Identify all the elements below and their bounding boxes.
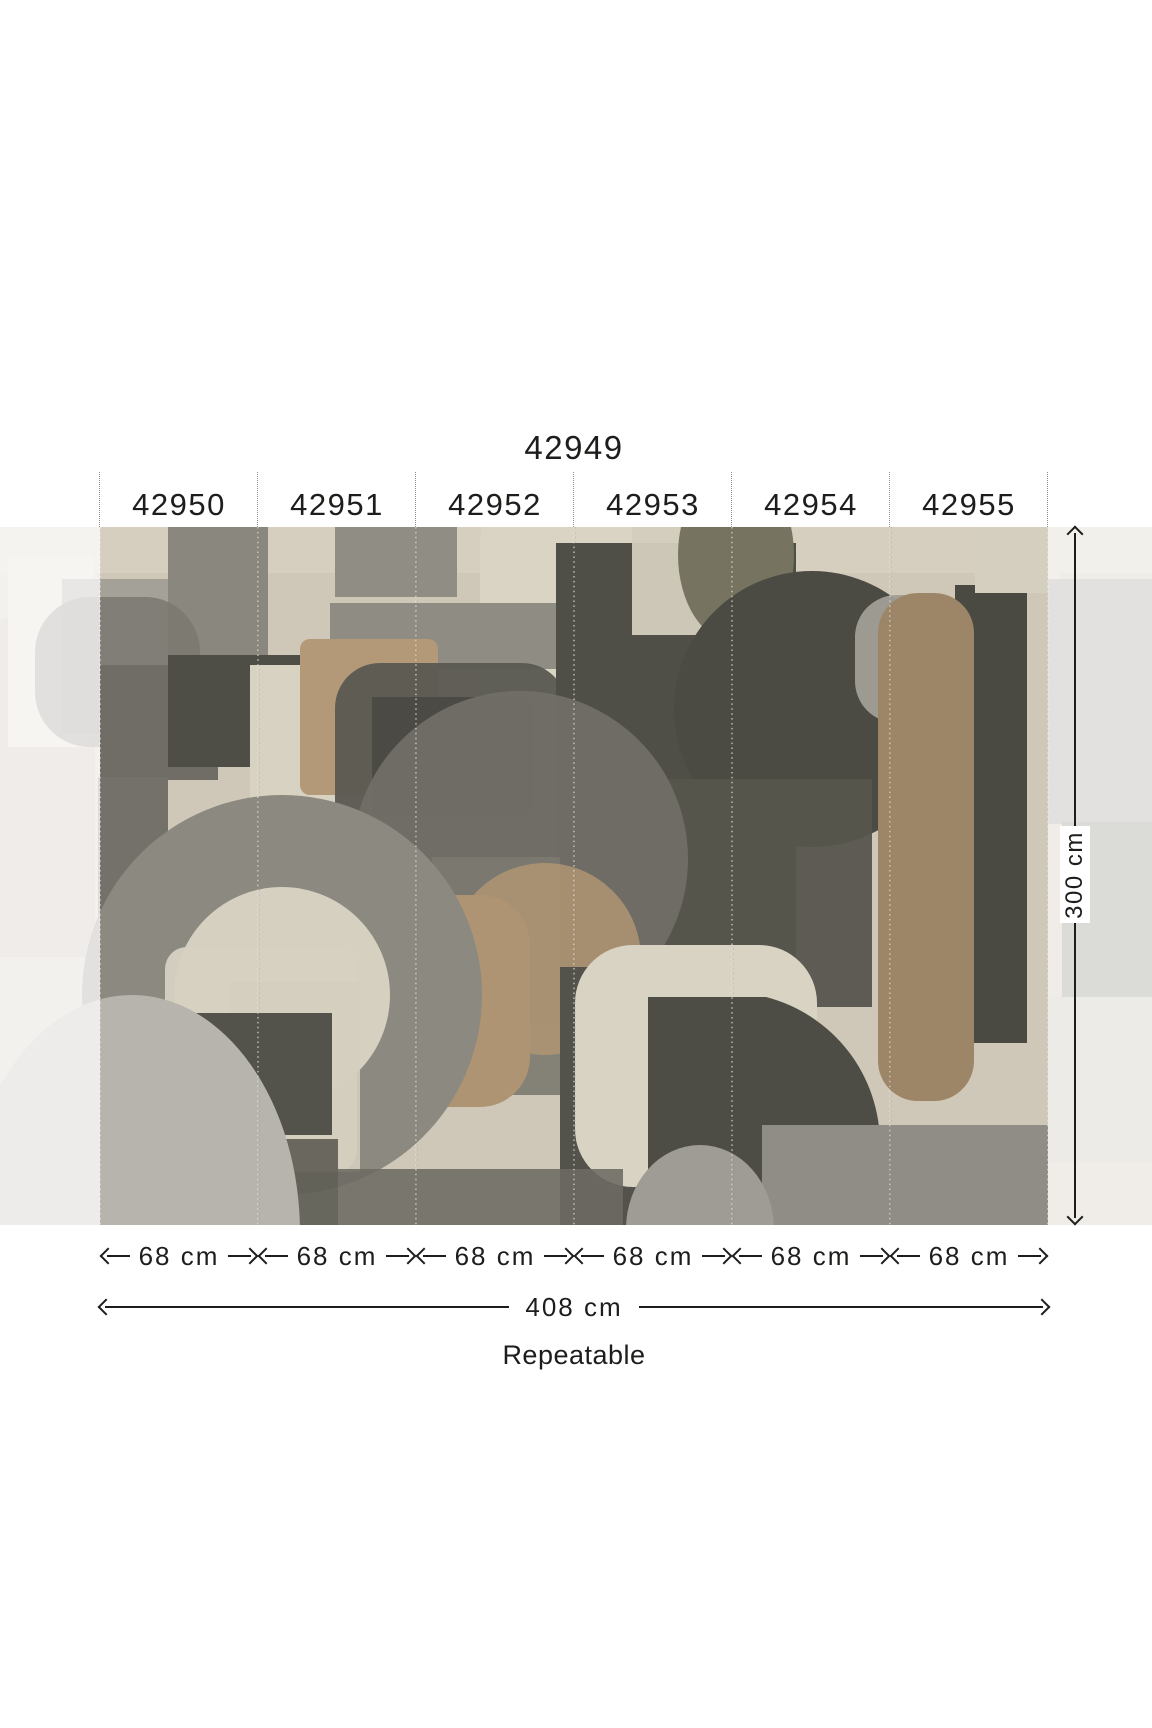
panel-number: 42955 bbox=[890, 487, 1048, 523]
arrow-left-icon bbox=[98, 1299, 115, 1316]
panel-divider bbox=[257, 472, 258, 527]
height-label-box: 300 cm bbox=[1060, 826, 1090, 923]
arrow-right-icon bbox=[716, 1248, 733, 1265]
set-number: 42949 bbox=[100, 429, 1048, 467]
panel-width-measure: 68 cm bbox=[100, 1240, 258, 1272]
panel-number: 42951 bbox=[258, 487, 416, 523]
panel-width-label: 68 cm bbox=[929, 1241, 1010, 1272]
panel-number: 42950 bbox=[100, 487, 258, 523]
arrow-left-icon bbox=[258, 1248, 275, 1265]
arrow-right-icon bbox=[1032, 1248, 1049, 1265]
panel-width-label: 68 cm bbox=[771, 1241, 852, 1272]
panel-divider bbox=[1047, 472, 1048, 527]
panel-width-measure: 68 cm bbox=[416, 1240, 574, 1272]
total-width-label: 408 cm bbox=[525, 1292, 622, 1323]
panel-width-label: 68 cm bbox=[297, 1241, 378, 1272]
arrow-right-icon bbox=[400, 1248, 417, 1265]
height-label: 300 cm bbox=[1061, 831, 1089, 919]
panel-divider bbox=[731, 472, 732, 527]
panel-width-measure: 68 cm bbox=[732, 1240, 890, 1272]
repeat-label: Repeatable bbox=[100, 1340, 1048, 1371]
panel-width-row: 68 cm 68 cm 68 cm 68 cm 68 cm 68 cm bbox=[100, 1240, 1048, 1272]
mural-image bbox=[0, 527, 1152, 1225]
panel-divider bbox=[573, 472, 574, 527]
arrow-left-icon bbox=[890, 1248, 907, 1265]
panel-width-label: 68 cm bbox=[139, 1241, 220, 1272]
arrow-right-icon bbox=[1034, 1299, 1051, 1316]
panel-width-measure: 68 cm bbox=[574, 1240, 732, 1272]
panel-number: 42954 bbox=[732, 487, 890, 523]
panel-number: 42953 bbox=[574, 487, 732, 523]
arrow-left-icon bbox=[100, 1248, 117, 1265]
arrow-up-icon bbox=[1067, 526, 1084, 543]
panel-number: 42952 bbox=[416, 487, 574, 523]
panel-width-measure: 68 cm bbox=[258, 1240, 416, 1272]
panel-divider bbox=[415, 472, 416, 527]
total-width-measure: 408 cm bbox=[100, 1294, 1048, 1320]
arrow-left-icon bbox=[574, 1248, 591, 1265]
panel-width-measure: 68 cm bbox=[890, 1240, 1048, 1272]
arrow-right-icon bbox=[874, 1248, 891, 1265]
panel-divider bbox=[889, 472, 890, 527]
arrow-down-icon bbox=[1067, 1209, 1084, 1226]
panel-divider bbox=[99, 472, 100, 527]
arrow-right-icon bbox=[558, 1248, 575, 1265]
panel-width-label: 68 cm bbox=[613, 1241, 694, 1272]
arrow-right-icon bbox=[242, 1248, 259, 1265]
arrow-left-icon bbox=[416, 1248, 433, 1265]
panel-width-label: 68 cm bbox=[455, 1241, 536, 1272]
arrow-left-icon bbox=[732, 1248, 749, 1265]
panel-number-row: 42950 42951 42952 42953 42954 42955 bbox=[100, 487, 1048, 523]
